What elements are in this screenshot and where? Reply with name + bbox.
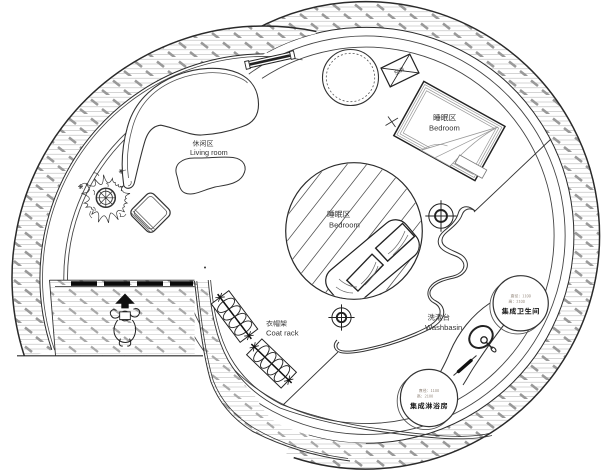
svg-text:Living room: Living room [190, 148, 228, 157]
svg-text:Bedroom: Bedroom [329, 221, 360, 230]
svg-text:Bedroom: Bedroom [429, 124, 460, 133]
svg-text:Coat rack: Coat rack [266, 329, 299, 338]
svg-text:Washbasin: Washbasin [425, 323, 462, 332]
